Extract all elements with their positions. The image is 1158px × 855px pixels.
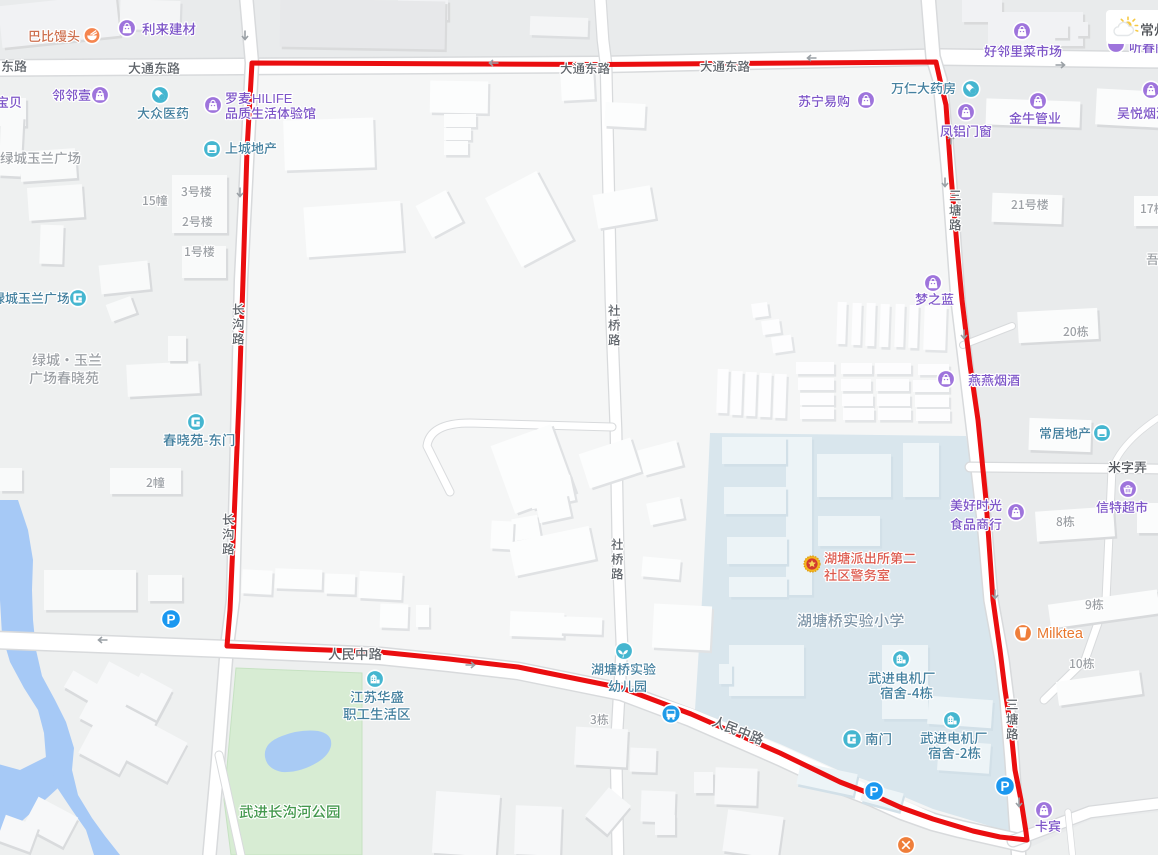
svg-text:P: P (1000, 779, 1009, 794)
svg-text:P: P (869, 784, 878, 799)
svg-text:Milktea: Milktea (1037, 626, 1084, 642)
svg-text:P: P (166, 612, 175, 627)
svg-text:HILIFE: HILIFE (252, 91, 293, 106)
